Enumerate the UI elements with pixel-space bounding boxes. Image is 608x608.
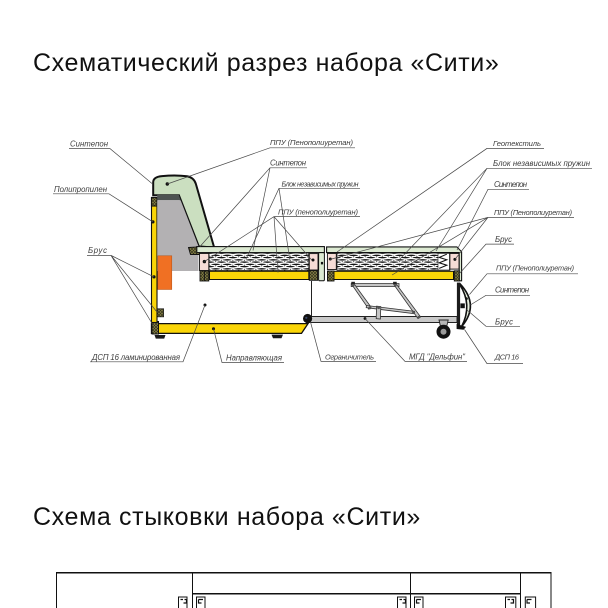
svg-text:ДСП 16: ДСП 16	[494, 353, 520, 362]
svg-text:Синтепон: Синтепон	[494, 180, 528, 189]
svg-text:Направляющая: Направляющая	[226, 354, 283, 363]
svg-text:Геотекстиль: Геотекстиль	[493, 139, 541, 148]
svg-text:Брус: Брус	[495, 235, 512, 244]
svg-text:Полипропилен: Полипропилен	[54, 185, 108, 194]
svg-text:Ограничитель: Ограничитель	[325, 353, 374, 362]
svg-text:ППУ (Пенополиуретан): ППУ (Пенополиуретан)	[494, 208, 572, 217]
svg-text:ППУ (пенополиуретан): ППУ (пенополиуретан)	[278, 207, 358, 216]
svg-text:Брус: Брус	[88, 246, 107, 255]
svg-text:Брус: Брус	[495, 318, 513, 327]
svg-text:ППУ (Пенополиуретан): ППУ (Пенополиуретан)	[270, 138, 353, 147]
svg-text:ППУ (Пенополиуретан): ППУ (Пенополиуретан)	[496, 264, 574, 273]
svg-text:Синтепон: Синтепон	[495, 286, 530, 295]
svg-text:Блок независимых пружин: Блок независимых пружин	[282, 181, 359, 189]
svg-text:ДСП 16 ламинированная: ДСП 16 ламинированная	[91, 353, 181, 362]
svg-text:Блок независимых пружин: Блок независимых пружин	[493, 159, 591, 168]
svg-text:МГД "Дельфин": МГД "Дельфин"	[409, 353, 466, 362]
svg-text:Синтепон: Синтепон	[270, 159, 307, 168]
svg-text:Синтепон: Синтепон	[70, 140, 109, 149]
